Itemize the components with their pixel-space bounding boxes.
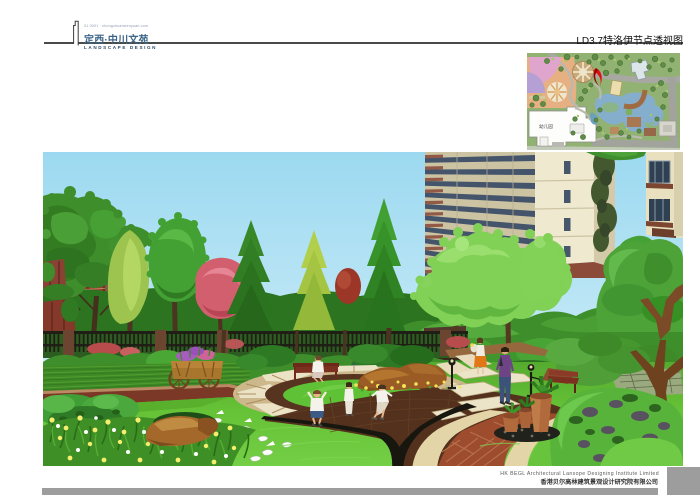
svg-text:幼儿园: 幼儿园 bbox=[539, 123, 553, 130]
